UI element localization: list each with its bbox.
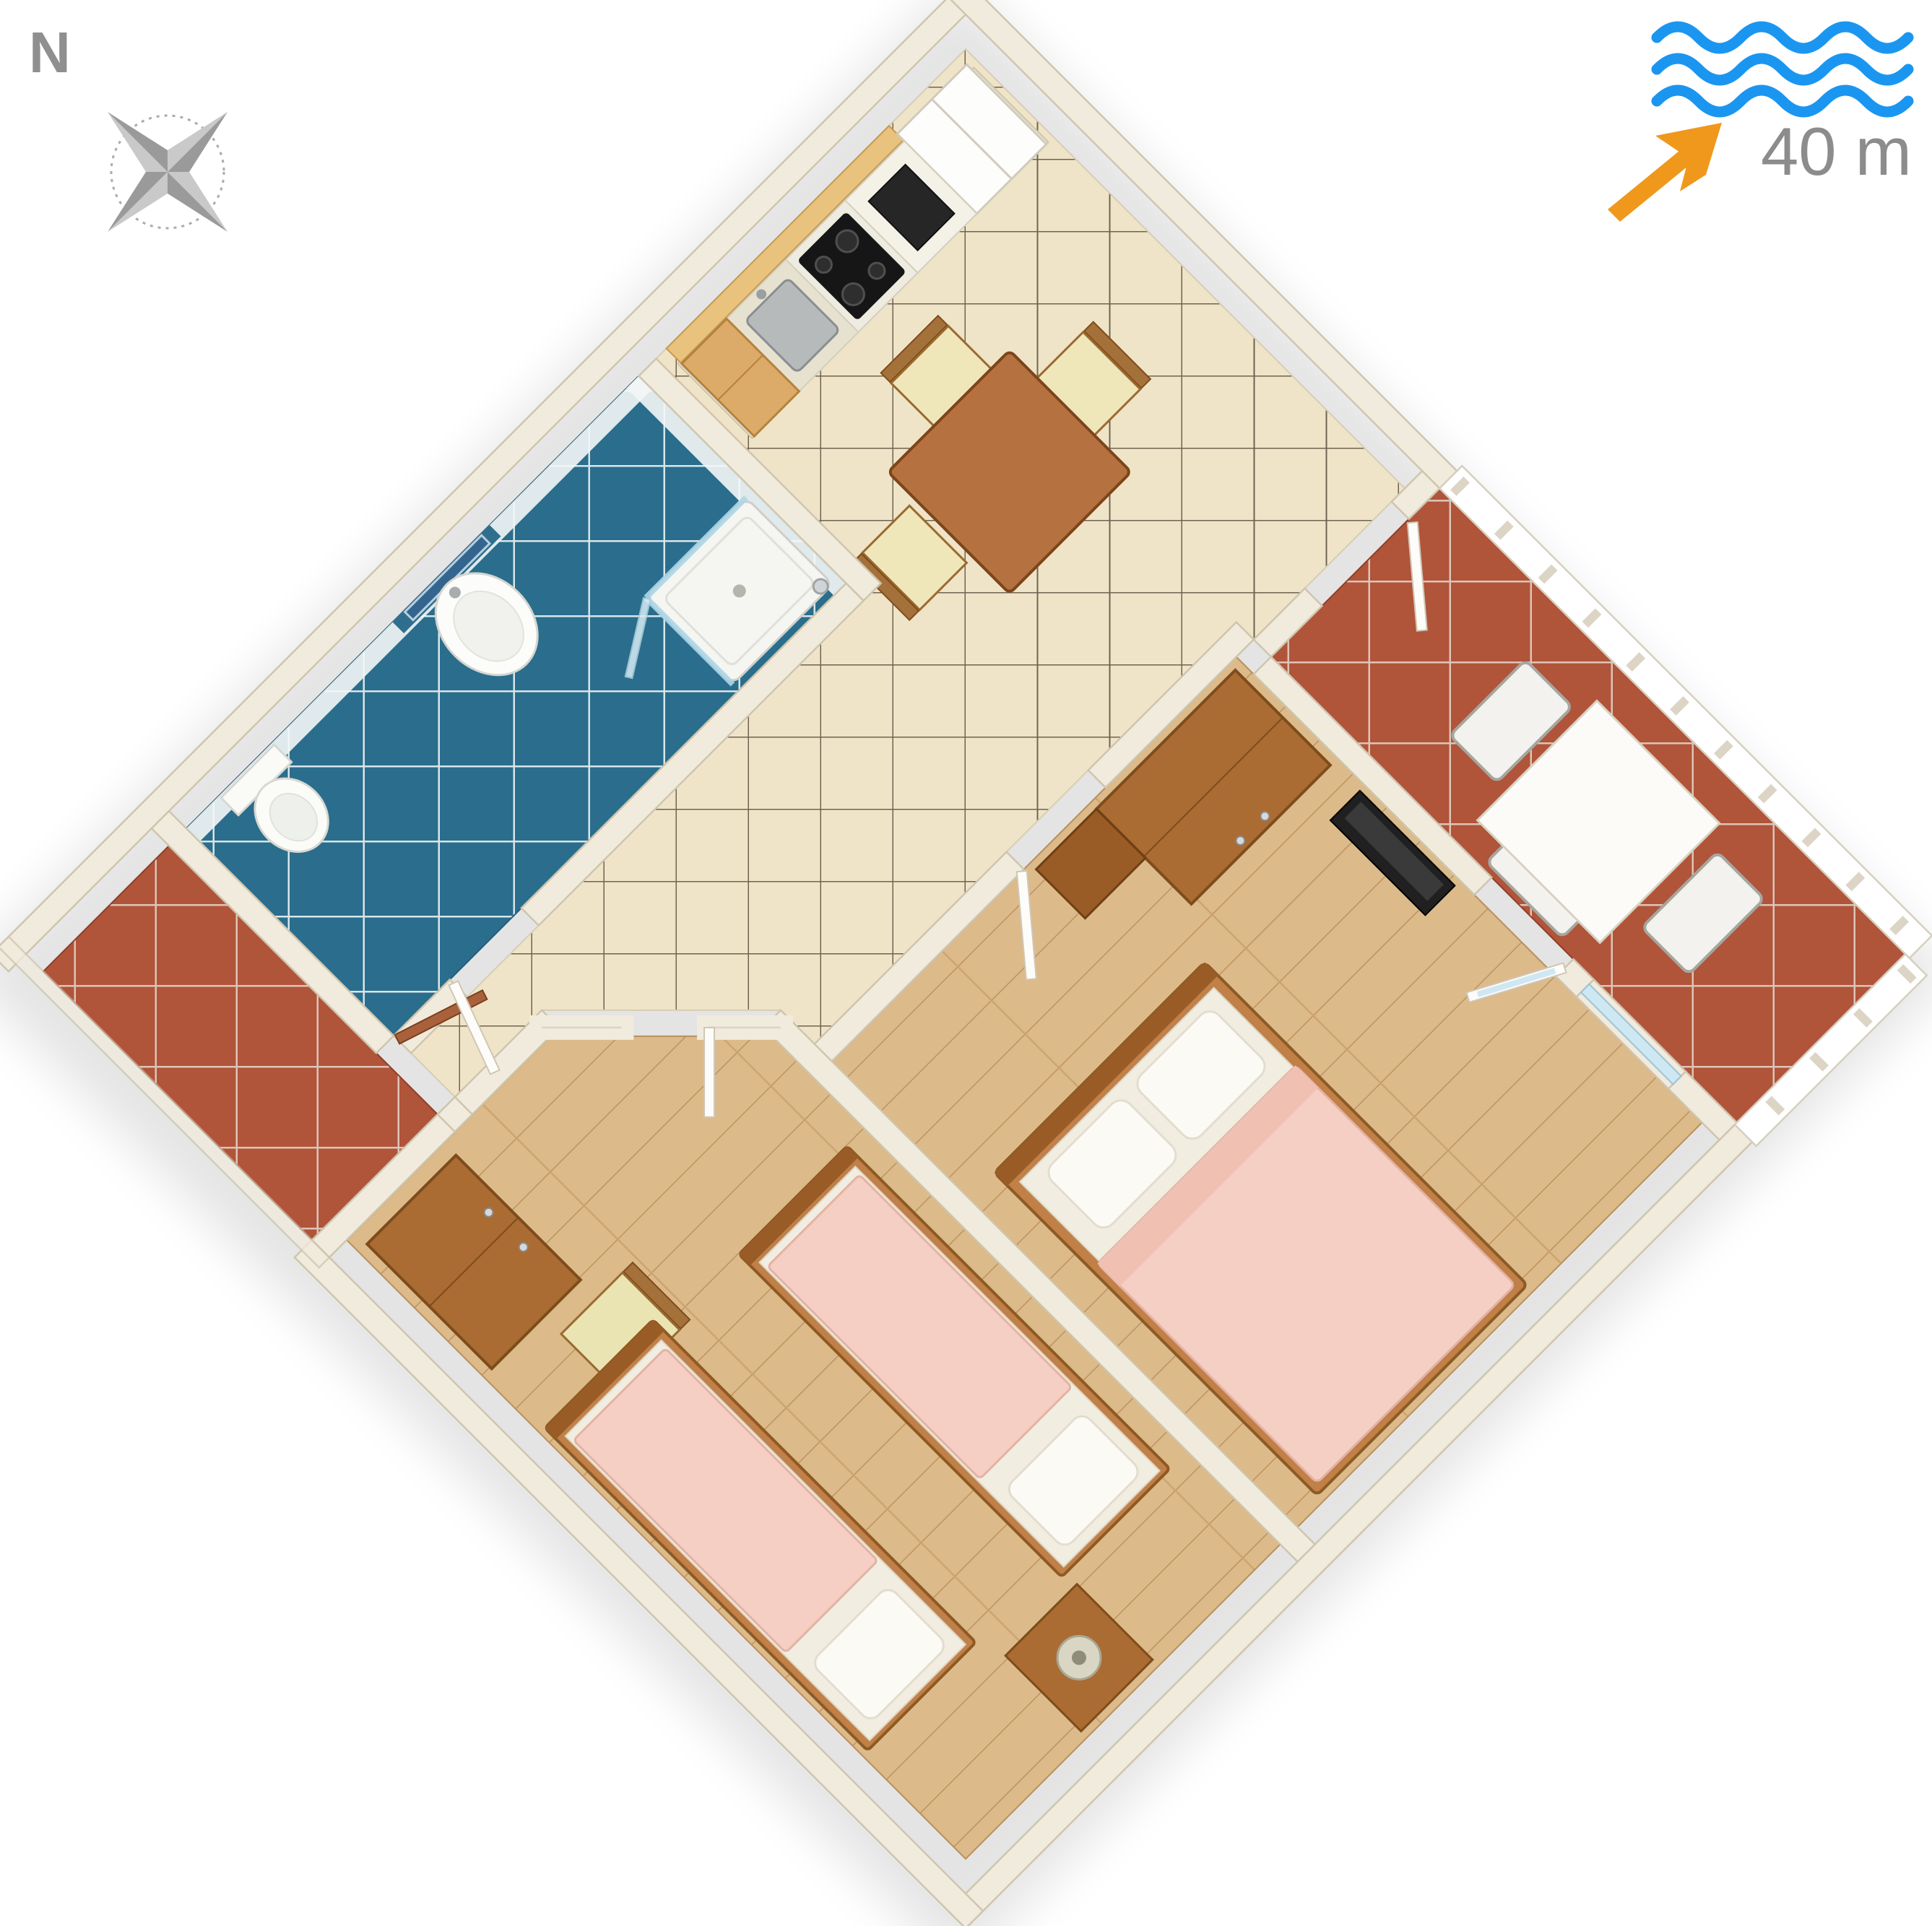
bedroom-twin-door xyxy=(704,1028,714,1117)
floorplan-canvas: N 40 m xyxy=(0,0,1932,1926)
floor-plan xyxy=(0,0,1932,1926)
compass-star xyxy=(108,112,228,232)
sea-distance-label: 40 m xyxy=(1761,113,1912,189)
sea-distance-indicator: 40 m xyxy=(1608,27,1912,222)
waves-icon xyxy=(1657,27,1908,112)
arrow-northeast-icon xyxy=(1608,123,1722,222)
compass-n-label: N xyxy=(29,20,71,84)
floorplan-page: N 40 m xyxy=(0,0,1932,1926)
compass-icon: N xyxy=(29,20,228,232)
